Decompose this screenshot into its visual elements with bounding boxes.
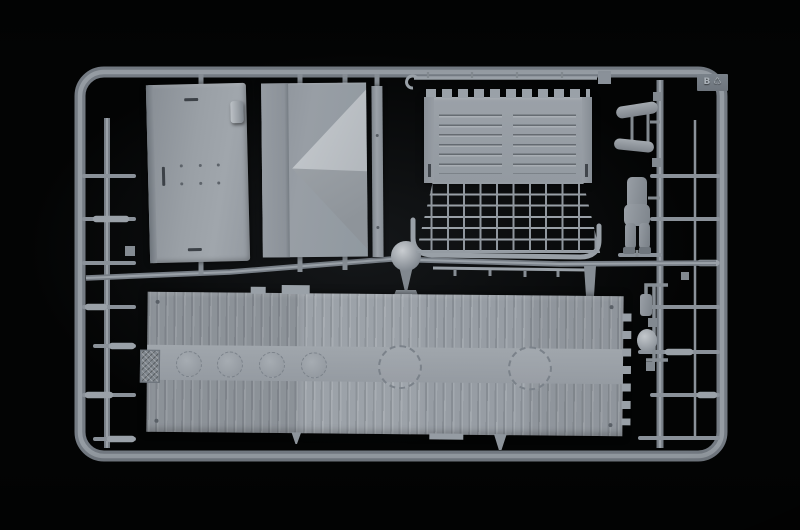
door-panel-part — [146, 83, 250, 263]
door-slot-left — [162, 167, 165, 186]
tailgate-ribs-left — [439, 110, 502, 174]
hook-fitting-part — [640, 294, 652, 316]
number-tab — [646, 362, 655, 371]
ball-fitting — [391, 241, 421, 271]
sprue-letter-tag: B ♺ — [697, 74, 728, 91]
door-slot-top — [184, 98, 198, 101]
figure-leg — [625, 223, 636, 249]
deck-top-gate — [584, 266, 596, 296]
mesh-ramp-grating — [414, 182, 602, 253]
plank-deck-part — [146, 292, 623, 437]
sprue-photo: B ♺ — [0, 0, 800, 530]
deck-hatch-large — [508, 346, 552, 390]
right-small-rod-parts — [668, 263, 716, 395]
figure-boot — [623, 247, 635, 254]
number-tab — [653, 92, 662, 101]
tailgate-ribs-right — [513, 110, 576, 174]
deck-toothed-edge — [621, 313, 631, 425]
deck-bottom-tab — [429, 433, 463, 439]
number-tab — [648, 318, 657, 327]
sprue-frame-and-runners — [0, 0, 800, 530]
tarpaulin-part — [261, 82, 368, 257]
figure-legs-part — [622, 177, 654, 255]
deck-top-tab — [251, 287, 266, 294]
deck-hatch — [301, 352, 327, 378]
tow-rod-hook — [407, 76, 417, 88]
deck-hatch-large — [378, 345, 422, 389]
recycling-icon: ♺ — [713, 78, 721, 87]
tailgate-castellated-edge — [426, 89, 590, 98]
deck-hatch — [217, 351, 243, 377]
figure-torso — [627, 177, 647, 207]
deck-top-tab — [282, 285, 310, 294]
deck-hatch — [259, 352, 285, 378]
figure-leg — [639, 223, 650, 249]
door-slot-bottom — [188, 248, 202, 251]
tarp-side-strip — [261, 83, 290, 257]
number-tab — [652, 158, 661, 167]
door-handle-cylinder — [230, 101, 244, 123]
round-fitting-part — [637, 329, 657, 352]
number-tab — [681, 272, 689, 280]
plank-strip-part — [371, 86, 383, 257]
sprue-letter: B — [704, 78, 711, 87]
tailgate-part — [424, 97, 592, 183]
deck-tread-plate — [140, 350, 160, 383]
deck-hatch — [176, 351, 202, 377]
figure-boot — [639, 247, 651, 254]
side-rail-part — [433, 268, 588, 270]
